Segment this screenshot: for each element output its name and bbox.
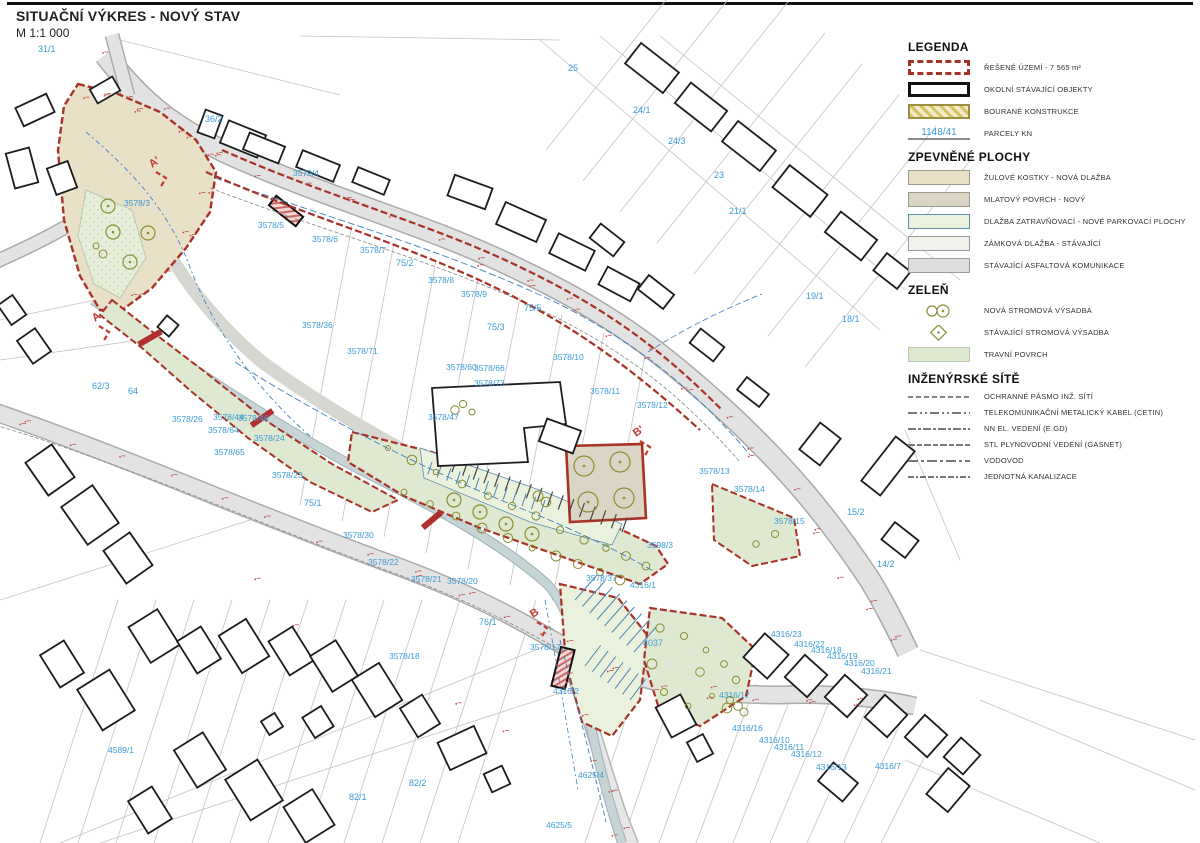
survey-point bbox=[866, 609, 868, 611]
legend-panel: LEGENDA ŘEŠENÉ ÚZEMÍ - 7 565 m² OKOLNÍ S… bbox=[908, 40, 1194, 488]
new-tree-center bbox=[531, 533, 534, 536]
building bbox=[825, 212, 877, 261]
survey-point bbox=[459, 595, 461, 597]
telecom-line bbox=[908, 412, 970, 414]
new-tree-center bbox=[619, 461, 622, 464]
legend-item-label: BOURANÉ KONSTRUKCE bbox=[984, 107, 1079, 116]
parcel-number-label: 3578/10 bbox=[553, 352, 584, 362]
parcel-number-label: 4625/4 bbox=[578, 770, 604, 780]
survey-point bbox=[540, 633, 542, 635]
building bbox=[873, 253, 910, 289]
legend-item-interlock: ZÁMKOVÁ DLAŽBA - STÁVAJÍCÍ bbox=[908, 236, 1194, 251]
parcel-number-label: 3578/18 bbox=[389, 651, 420, 661]
new-tree-center bbox=[505, 523, 508, 526]
parcel-line bbox=[540, 40, 880, 330]
survey-point bbox=[367, 554, 369, 556]
survey-point bbox=[469, 593, 471, 595]
parcel-number-label: 3578/15 bbox=[774, 516, 805, 526]
building bbox=[690, 329, 725, 362]
survey-point bbox=[182, 232, 184, 234]
parcel-number-label: 3578/65 bbox=[214, 447, 245, 457]
building bbox=[17, 328, 51, 364]
parcel-number-label: 31/1 bbox=[38, 44, 56, 54]
survey-point bbox=[187, 137, 189, 139]
parcel-number-label: 4316/12 bbox=[791, 749, 822, 759]
building bbox=[687, 734, 713, 762]
survey-point bbox=[264, 516, 266, 518]
survey-point bbox=[607, 671, 609, 673]
building bbox=[905, 715, 947, 757]
building bbox=[310, 640, 358, 692]
parcel-number-label: 3578/30 bbox=[343, 530, 374, 540]
survey-point bbox=[305, 183, 307, 185]
mlat-square-plaza bbox=[566, 444, 646, 522]
survey-point bbox=[137, 109, 139, 111]
parcel-sample-number: 1148/41 bbox=[921, 127, 956, 138]
building bbox=[283, 789, 334, 843]
stream-crossing bbox=[421, 510, 443, 530]
new-tree-center bbox=[623, 497, 626, 500]
legend-item-label: ZÁMKOVÁ DLAŽBA - STÁVAJÍCÍ bbox=[984, 239, 1101, 248]
legend-item-label: VODOVOD bbox=[984, 456, 1024, 465]
parcel-line bbox=[920, 650, 1195, 740]
section-marker-label: B' bbox=[631, 423, 647, 439]
legend-item-label: TRAVNÍ POVRCH bbox=[984, 350, 1048, 359]
survey-point bbox=[83, 97, 85, 99]
legend-item-asphalt: STÁVAJÍCÍ ASFALTOVÁ KOMUNIKACE bbox=[908, 258, 1194, 273]
existing-tree-icon bbox=[908, 325, 970, 340]
building bbox=[438, 726, 487, 770]
new-tree-center bbox=[147, 232, 150, 235]
legend-item-label: OCHRANNÉ PÁSMO INŽ. SÍTÍ bbox=[984, 392, 1093, 401]
legend-section-heading: ZELEŇ bbox=[908, 283, 1194, 297]
parcel-number-label: 3578/3 bbox=[124, 198, 150, 208]
building bbox=[128, 786, 172, 833]
survey-point bbox=[752, 699, 754, 701]
stream bbox=[93, 300, 622, 843]
parcel-number-label: 3578/22 bbox=[368, 557, 399, 567]
parcel-number-label: 19/1 bbox=[806, 291, 824, 301]
survey-point bbox=[127, 97, 129, 99]
survey-point bbox=[613, 668, 615, 670]
stream-layer bbox=[93, 300, 622, 843]
survey-point bbox=[653, 690, 655, 692]
parcel-number-label: 3578/36 bbox=[302, 320, 333, 330]
mlat-swatch bbox=[908, 192, 970, 207]
parcel-number-label: 4316/7 bbox=[875, 761, 901, 771]
boundary-swatch bbox=[908, 60, 970, 75]
survey-point bbox=[389, 216, 391, 218]
survey-point bbox=[207, 154, 209, 156]
survey-point bbox=[527, 280, 529, 282]
survey-point bbox=[179, 131, 181, 133]
page-title: SITUAČNÍ VÝKRES - NOVÝ STAV bbox=[16, 8, 240, 24]
survey-point bbox=[567, 673, 569, 675]
section-marker-label: A bbox=[90, 310, 103, 324]
gas-line bbox=[908, 444, 970, 446]
parcel-number-label: 14/2 bbox=[877, 559, 895, 569]
grass-swatch bbox=[908, 347, 970, 362]
parcel-number-label: 3578/26 bbox=[172, 414, 203, 424]
building bbox=[549, 233, 595, 270]
parcel-number-label: 3578/21 bbox=[411, 574, 442, 584]
survey-point bbox=[131, 294, 133, 296]
demolished-swatch bbox=[908, 104, 970, 119]
building bbox=[352, 167, 390, 195]
building bbox=[261, 713, 283, 735]
stream-fill bbox=[93, 300, 622, 843]
survey-point bbox=[650, 348, 652, 350]
survey-point bbox=[348, 200, 350, 202]
survey-point bbox=[171, 475, 173, 477]
parcel-number-label: 3598/3 bbox=[647, 540, 673, 550]
parcel-number-label: 24/3 bbox=[668, 136, 686, 146]
parcel-number-label: 3578/37 bbox=[586, 573, 617, 583]
survey-point bbox=[316, 541, 318, 543]
new-tree-center bbox=[453, 499, 456, 502]
parcel-number-label: 4037 bbox=[643, 638, 663, 648]
survey-point bbox=[190, 235, 192, 237]
legend-item-label: STÁVAJÍCÍ ASFALTOVÁ KOMUNIKACE bbox=[984, 261, 1125, 270]
survey-point bbox=[727, 417, 729, 419]
parcel-number-label: 4316/17 bbox=[719, 690, 750, 700]
survey-point bbox=[895, 636, 897, 638]
survey-point bbox=[254, 578, 256, 580]
survey-point bbox=[661, 686, 663, 688]
legend-item-label: OKOLNÍ STÁVAJÍCÍ OBJEKTY bbox=[984, 85, 1093, 94]
nn-power-line bbox=[908, 428, 970, 430]
legend-item-new-tree: NOVÁ STROMOVÁ VÝSADBA bbox=[908, 303, 1194, 318]
survey-point bbox=[813, 533, 815, 535]
sewer-line bbox=[908, 476, 970, 478]
parcel-number-label: 3578/71 bbox=[347, 346, 378, 356]
building bbox=[77, 670, 135, 731]
parcel-number-label: 3578/73 bbox=[474, 378, 505, 388]
survey-point bbox=[415, 571, 417, 573]
legend-item-label: ŘEŠENÉ ÚZEMÍ - 7 565 m² bbox=[984, 63, 1081, 72]
legend-item-solved-area: ŘEŠENÉ ÚZEMÍ - 7 565 m² bbox=[908, 60, 1194, 75]
parcel-number-label: 82/2 bbox=[409, 778, 427, 788]
building bbox=[61, 485, 119, 544]
grass-band-northwest bbox=[100, 300, 398, 512]
survey-point bbox=[345, 198, 347, 200]
building bbox=[825, 675, 867, 717]
parcel-number-label: 75/1 bbox=[304, 498, 322, 508]
legend-item-telecom: TELEKOMUNIKAČNÍ METALICKÝ KABEL (CETIN) bbox=[908, 408, 1194, 417]
building bbox=[15, 94, 54, 126]
survey-point bbox=[611, 835, 613, 837]
grass-paving-swatch bbox=[908, 214, 970, 229]
survey-point bbox=[574, 309, 576, 311]
building bbox=[400, 695, 440, 738]
survey-point bbox=[139, 294, 141, 296]
parcel-number-label: 4589/1 bbox=[108, 745, 134, 755]
interlock-swatch bbox=[908, 236, 970, 251]
parcel-number-label: 75/5 bbox=[524, 303, 542, 313]
building bbox=[6, 148, 38, 189]
building bbox=[269, 627, 314, 676]
building bbox=[625, 43, 679, 93]
legend-item-existing-tree: STÁVAJÍCÍ STROMOVÁ VÝSADBA bbox=[908, 325, 1194, 340]
legend-item-label: NN EL. VEDENÍ (E.GD) bbox=[984, 424, 1068, 433]
survey-point bbox=[711, 687, 713, 689]
survey-point bbox=[105, 94, 107, 96]
parcel-number-label: 3578/66 bbox=[474, 363, 505, 373]
parcel-number-label: 82/1 bbox=[349, 792, 367, 802]
new-tree-center bbox=[112, 231, 115, 234]
survey-point bbox=[504, 616, 506, 618]
drawing-sheet: SITUAČNÍ VÝKRES - NOVÝ STAV M 1:1 000 bbox=[0, 0, 1200, 843]
parcel-number-label: 36/2 bbox=[205, 114, 223, 124]
parcel-number-label: 3578/17 bbox=[530, 642, 561, 652]
section-marker-line bbox=[99, 326, 109, 342]
parcel-number-label: 4625/5 bbox=[546, 820, 572, 830]
survey-point bbox=[254, 175, 256, 177]
building bbox=[772, 165, 827, 217]
parcel-number-label: 3578/13 bbox=[699, 466, 730, 476]
survey-point bbox=[503, 731, 505, 733]
survey-point bbox=[70, 444, 72, 446]
parcel-number-label: 3578/14 bbox=[734, 484, 765, 494]
survey-point bbox=[608, 791, 610, 793]
legend-item-protection-zone: OCHRANNÉ PÁSMO INŽ. SÍTÍ bbox=[908, 392, 1194, 401]
building bbox=[128, 609, 179, 663]
parcel-number-swatch: 1148/41 bbox=[908, 126, 970, 140]
building bbox=[352, 663, 402, 717]
parcel-number-label: 75/3 bbox=[487, 322, 505, 332]
parcel-line bbox=[100, 680, 600, 843]
survey-point bbox=[623, 827, 625, 829]
parcel-number-label: 15/2 bbox=[847, 507, 865, 517]
survey-point bbox=[119, 456, 121, 458]
new-tree-center bbox=[587, 501, 590, 504]
legend-item-mlat: MLATOVÝ POVRCH - NOVÝ bbox=[908, 192, 1194, 207]
survey-point bbox=[611, 790, 613, 792]
legend-heading: LEGENDA bbox=[908, 40, 1194, 54]
building-swatch bbox=[908, 82, 970, 97]
survey-point bbox=[748, 448, 750, 450]
survey-point bbox=[806, 700, 808, 702]
legend-item-label: STL PLYNOVODNÍ VEDENÍ (GASNET) bbox=[984, 440, 1122, 449]
parcel-number-label: 3578/60 bbox=[446, 362, 477, 372]
survey-point bbox=[25, 421, 27, 423]
survey-point bbox=[854, 704, 856, 706]
building bbox=[103, 532, 152, 583]
building bbox=[40, 640, 84, 687]
survey-point bbox=[477, 265, 479, 267]
parcel-number-label: 3578/20 bbox=[447, 576, 478, 586]
legend-item-existing-objects: OKOLNÍ STÁVAJÍCÍ OBJEKTY bbox=[908, 82, 1194, 97]
building bbox=[638, 275, 674, 309]
parcel-number-label: 3579/4 bbox=[293, 168, 319, 178]
legend-item-label: NOVÁ STROMOVÁ VÝSADBA bbox=[984, 306, 1092, 315]
building bbox=[25, 444, 74, 495]
building bbox=[496, 202, 546, 242]
survey-point bbox=[478, 258, 480, 260]
legend-section-heading: INŽENÝRSKÉ SÍTĚ bbox=[908, 372, 1194, 386]
parcel-number-label: 23 bbox=[714, 170, 724, 180]
building bbox=[174, 732, 226, 787]
survey-point bbox=[707, 697, 709, 699]
survey-point bbox=[164, 108, 166, 110]
survey-point bbox=[809, 702, 811, 704]
legend-item-label: MLATOVÝ POVRCH - NOVÝ bbox=[984, 195, 1085, 204]
survey-point bbox=[590, 760, 592, 762]
building bbox=[484, 766, 511, 793]
survey-point bbox=[644, 358, 646, 360]
survey-point bbox=[164, 271, 166, 273]
building bbox=[447, 175, 492, 209]
parcel-number-label: 76/1 bbox=[479, 617, 497, 627]
legend-item-label: PARCELY KN bbox=[984, 129, 1032, 138]
survey-point bbox=[529, 286, 531, 288]
legend-item-sewer: JEDNOTNÁ KANALIZACE bbox=[908, 472, 1194, 481]
parcel-line bbox=[546, 0, 714, 150]
parcel-number-label: 3578/47 bbox=[428, 412, 459, 422]
building bbox=[302, 706, 333, 738]
parcel-line bbox=[980, 700, 1195, 790]
parcel-number-label: 4316/21 bbox=[861, 666, 892, 676]
granite-plaza-area bbox=[58, 84, 216, 310]
survey-point bbox=[134, 111, 136, 113]
legend-item-label: JEDNOTNÁ KANALIZACE bbox=[984, 472, 1077, 481]
legend-item-demolished: BOURANÉ KONSTRUKCE bbox=[908, 104, 1194, 119]
parcel-number-label: 3578/6 bbox=[312, 234, 338, 244]
survey-point bbox=[681, 388, 683, 390]
parcel-line bbox=[120, 40, 340, 95]
parcel-number-label: 3578/9 bbox=[461, 289, 487, 299]
parcel-number-label: 3578/24 bbox=[254, 433, 285, 443]
new-tree-icon bbox=[908, 303, 970, 318]
building bbox=[799, 423, 840, 466]
survey-point bbox=[19, 424, 21, 426]
survey-point bbox=[814, 529, 816, 531]
asphalt-swatch bbox=[908, 258, 970, 273]
parcel-line bbox=[458, 600, 536, 843]
survey-point bbox=[208, 192, 210, 194]
new-tree-center bbox=[583, 465, 586, 468]
parcel-number-label: 3578/12 bbox=[637, 400, 668, 410]
legend-item-water: VODOVOD bbox=[908, 456, 1194, 465]
protection-zone-line bbox=[908, 396, 970, 398]
legend-section-heading: ZPEVNĚNÉ PLOCHY bbox=[908, 150, 1194, 164]
legend-item-label: TELEKOMUNIKAČNÍ METALICKÝ KABEL (CETIN) bbox=[984, 408, 1163, 417]
survey-point bbox=[439, 239, 441, 241]
survey-point bbox=[455, 703, 457, 705]
scale-label: M 1:1 000 bbox=[16, 26, 240, 40]
parcel-line bbox=[733, 692, 793, 843]
legend-item-parcels: 1148/41 PARCELY KN bbox=[908, 126, 1194, 140]
survey-point bbox=[102, 52, 104, 54]
survey-point bbox=[199, 193, 201, 195]
parcel-number-label: 21/1 bbox=[729, 206, 747, 216]
building bbox=[0, 295, 26, 325]
parcel-number-label: 3578/8 bbox=[428, 275, 454, 285]
parcel-number-label: 62/3 bbox=[92, 381, 110, 391]
survey-point bbox=[216, 152, 218, 154]
survey-point bbox=[794, 489, 796, 491]
parcel-line bbox=[300, 36, 560, 40]
survey-point bbox=[891, 639, 893, 641]
new-tree-center bbox=[129, 261, 132, 264]
legend-item-label: STÁVAJÍCÍ STROMOVÁ VÝSADBA bbox=[984, 328, 1109, 337]
survey-point bbox=[215, 155, 217, 157]
parcel-number-label: 3578/5 bbox=[258, 220, 284, 230]
parcel-number-label: 3578/7 bbox=[360, 245, 386, 255]
legend-item-grass: TRAVNÍ POVRCH bbox=[908, 347, 1194, 362]
parcel-number-label: 4316/23 bbox=[771, 629, 802, 639]
building bbox=[881, 522, 918, 558]
parcel-number-label: 25 bbox=[568, 63, 578, 73]
building bbox=[598, 267, 639, 302]
building bbox=[539, 419, 581, 454]
building bbox=[722, 121, 776, 171]
survey-point bbox=[582, 715, 584, 717]
parcel-number-label: 4316/16 bbox=[732, 723, 763, 733]
building bbox=[675, 83, 727, 132]
survey-point bbox=[567, 640, 569, 642]
water-line bbox=[908, 460, 970, 462]
legend-item-granite: ŽULOVÉ KOSTKY - NOVÁ DLAŽBA bbox=[908, 170, 1194, 185]
granite-swatch bbox=[908, 170, 970, 185]
title-block: SITUAČNÍ VÝKRES - NOVÝ STAV M 1:1 000 bbox=[16, 8, 240, 40]
parcel-number-label: 4316/13 bbox=[816, 762, 847, 772]
building bbox=[737, 377, 769, 407]
survey-point bbox=[293, 625, 295, 627]
parcel-number-label: 3578/46 bbox=[238, 413, 269, 423]
parcel-number-label: 4316/1 bbox=[630, 580, 656, 590]
legend-item-gas: STL PLYNOVODNÍ VEDENÍ (GASNET) bbox=[908, 440, 1194, 449]
parcel-number-label: 18/1 bbox=[842, 314, 860, 324]
survey-point bbox=[748, 456, 750, 458]
parcel-number-label: 24/1 bbox=[633, 105, 651, 115]
building bbox=[225, 760, 283, 821]
survey-point bbox=[837, 577, 839, 579]
parcel-number-label: 3578/64 bbox=[208, 425, 239, 435]
survey-point bbox=[857, 698, 859, 700]
survey-point bbox=[567, 298, 569, 300]
parcel-number-label: 3578/23 bbox=[272, 470, 303, 480]
survey-point bbox=[565, 682, 567, 684]
survey-point bbox=[871, 601, 873, 603]
legend-item-label: ŽULOVÉ KOSTKY - NOVÁ DLAŽBA bbox=[984, 173, 1111, 182]
parcel-number-label: 64 bbox=[128, 386, 138, 396]
legend-item-nn-power: NN EL. VEDENÍ (E.GD) bbox=[908, 424, 1194, 433]
survey-point bbox=[687, 390, 689, 392]
parcel-number-label: 3578/11 bbox=[590, 386, 620, 396]
legend-item-grass-paving: DLAŽBA ZATRAVŇOVACÍ - NOVÉ PARKOVACÍ PLO… bbox=[908, 214, 1194, 229]
survey-point bbox=[605, 335, 607, 337]
building bbox=[861, 437, 914, 496]
new-tree-center bbox=[479, 511, 482, 514]
survey-point bbox=[222, 498, 224, 500]
parcel-number-label: 4316/2 bbox=[553, 686, 579, 696]
new-tree-center bbox=[107, 205, 110, 208]
parcel-number-label: 75/2 bbox=[396, 258, 414, 268]
legend-item-label: DLAŽBA ZATRAVŇOVACÍ - NOVÉ PARKOVACÍ PLO… bbox=[984, 217, 1186, 226]
